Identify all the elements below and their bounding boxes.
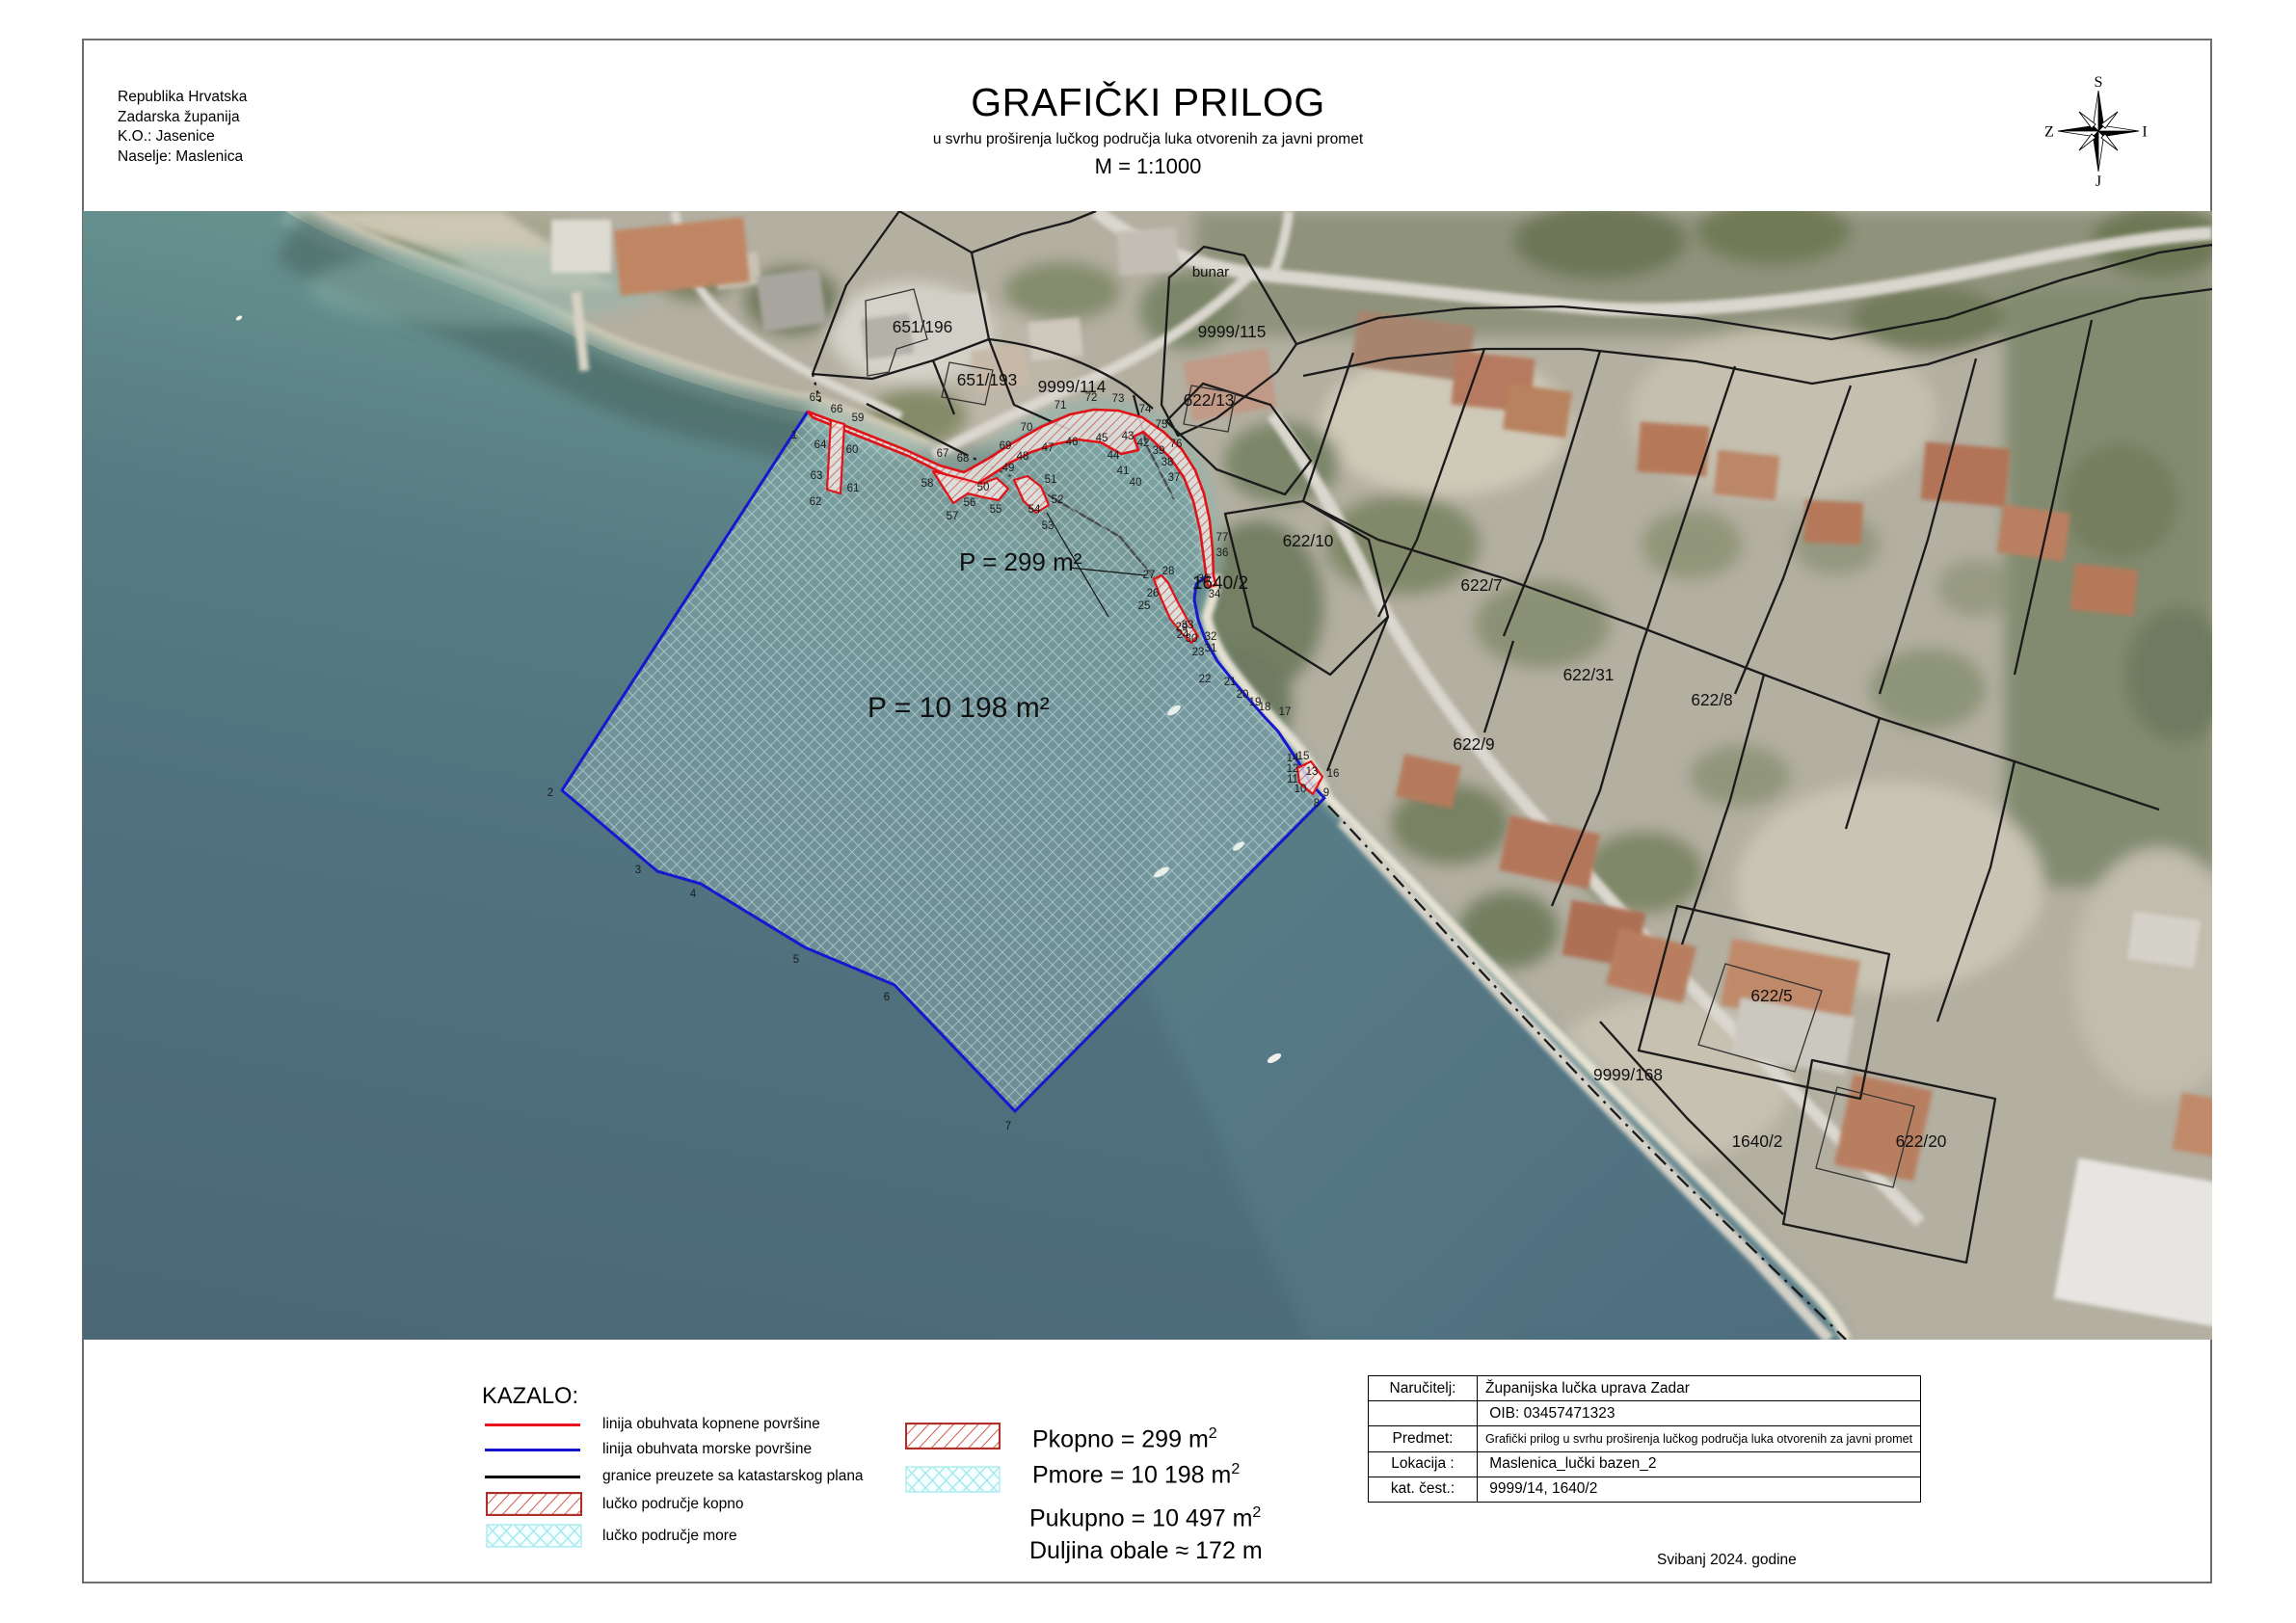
svg-text:39: 39 [1153,445,1165,457]
svg-text:73: 73 [1112,393,1125,405]
svg-text:622/20: 622/20 [1896,1131,1947,1151]
svg-text:20: 20 [1237,689,1249,701]
svg-text:651/196: 651/196 [893,317,952,336]
svg-text:5: 5 [793,954,799,966]
svg-text:66: 66 [831,404,843,415]
svg-text:622/5: 622/5 [1750,986,1792,1005]
svg-text:37: 37 [1168,472,1181,484]
svg-text:46: 46 [1066,437,1079,448]
svg-text:25: 25 [1138,600,1151,612]
svg-text:57: 57 [947,511,959,522]
svg-text:15: 15 [1297,751,1310,762]
svg-text:1: 1 [791,430,797,441]
svg-text:47: 47 [1042,442,1055,454]
svg-text:26: 26 [1147,588,1160,599]
svg-text:52: 52 [1052,494,1064,506]
svg-text:4: 4 [690,889,697,900]
svg-text:bunar: bunar [1192,264,1229,280]
svg-text:27: 27 [1143,570,1156,581]
svg-text:9999/115: 9999/115 [1198,322,1267,341]
svg-text:9999/168: 9999/168 [1593,1065,1663,1084]
svg-text:45: 45 [1096,433,1108,444]
svg-text:622/7: 622/7 [1460,575,1502,595]
svg-text:40: 40 [1130,477,1142,489]
svg-text:17: 17 [1279,706,1292,718]
svg-text:69: 69 [1000,440,1012,452]
svg-text:54: 54 [1028,504,1041,516]
svg-text:32: 32 [1205,631,1217,643]
svg-text:48: 48 [1017,451,1029,463]
svg-text:53: 53 [1042,520,1055,532]
svg-text:622/13: 622/13 [1184,390,1235,410]
svg-text:38: 38 [1161,457,1174,468]
svg-text:68: 68 [957,453,970,465]
svg-text:75: 75 [1156,419,1168,431]
svg-text:51: 51 [1045,474,1057,486]
svg-text:71: 71 [1055,400,1067,412]
svg-text:65: 65 [810,392,822,404]
svg-text:44: 44 [1108,450,1120,462]
svg-text:622/10: 622/10 [1283,531,1334,550]
svg-text:I: I [2142,124,2147,141]
svg-text:43: 43 [1122,431,1135,442]
svg-text:77: 77 [1216,532,1229,544]
svg-text:22: 22 [1199,674,1212,685]
svg-text:59: 59 [852,412,865,424]
svg-text:21: 21 [1224,677,1237,688]
svg-text:622/9: 622/9 [1453,734,1494,754]
svg-text:2: 2 [547,787,553,799]
svg-text:64: 64 [814,439,827,451]
svg-text:S: S [2095,74,2103,91]
svg-text:P = 299 m²: P = 299 m² [959,547,1082,576]
svg-text:6: 6 [884,992,890,1003]
svg-text:8: 8 [1314,798,1320,810]
svg-text:1640/2: 1640/2 [1732,1131,1783,1151]
svg-text:651/193: 651/193 [957,370,1017,389]
svg-text:55: 55 [990,504,1002,516]
svg-text:62: 62 [810,496,822,508]
svg-text:42: 42 [1137,438,1150,449]
svg-text:16: 16 [1327,768,1340,780]
svg-text:36: 36 [1216,547,1229,559]
svg-text:10: 10 [1295,784,1307,795]
svg-text:35: 35 [1198,573,1211,585]
svg-text:56: 56 [964,497,976,509]
svg-text:61: 61 [847,483,860,494]
svg-text:31: 31 [1205,643,1217,654]
svg-text:76: 76 [1170,439,1183,450]
svg-text:58: 58 [921,478,934,490]
svg-text:3: 3 [635,865,641,876]
svg-text:Z: Z [2044,124,2054,141]
svg-text:9: 9 [1323,787,1329,799]
svg-text:34: 34 [1209,589,1221,600]
svg-text:50: 50 [977,482,990,493]
svg-text:74: 74 [1139,404,1152,415]
svg-text:622/8: 622/8 [1691,690,1732,709]
svg-text:49: 49 [1002,463,1015,474]
svg-text:7: 7 [1005,1121,1011,1132]
svg-text:60: 60 [846,444,859,456]
svg-text:72: 72 [1085,392,1098,404]
svg-text:24: 24 [1177,629,1189,641]
svg-text:41: 41 [1117,466,1130,477]
svg-text:13: 13 [1306,766,1319,778]
svg-text:J: J [2096,173,2101,189]
svg-text:23: 23 [1192,647,1205,658]
svg-text:28: 28 [1162,566,1175,577]
svg-text:67: 67 [937,448,949,460]
svg-text:P = 10 198 m²: P = 10 198 m² [868,692,1050,724]
svg-text:622/31: 622/31 [1563,665,1615,684]
svg-text:63: 63 [811,470,823,482]
svg-text:70: 70 [1021,422,1033,434]
svg-text:18: 18 [1259,702,1271,713]
